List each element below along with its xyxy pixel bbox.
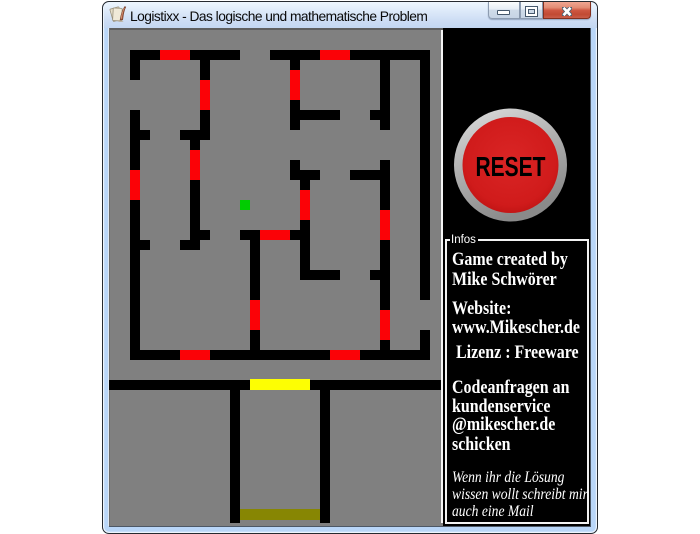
svg-text:RESET: RESET [476,151,546,182]
